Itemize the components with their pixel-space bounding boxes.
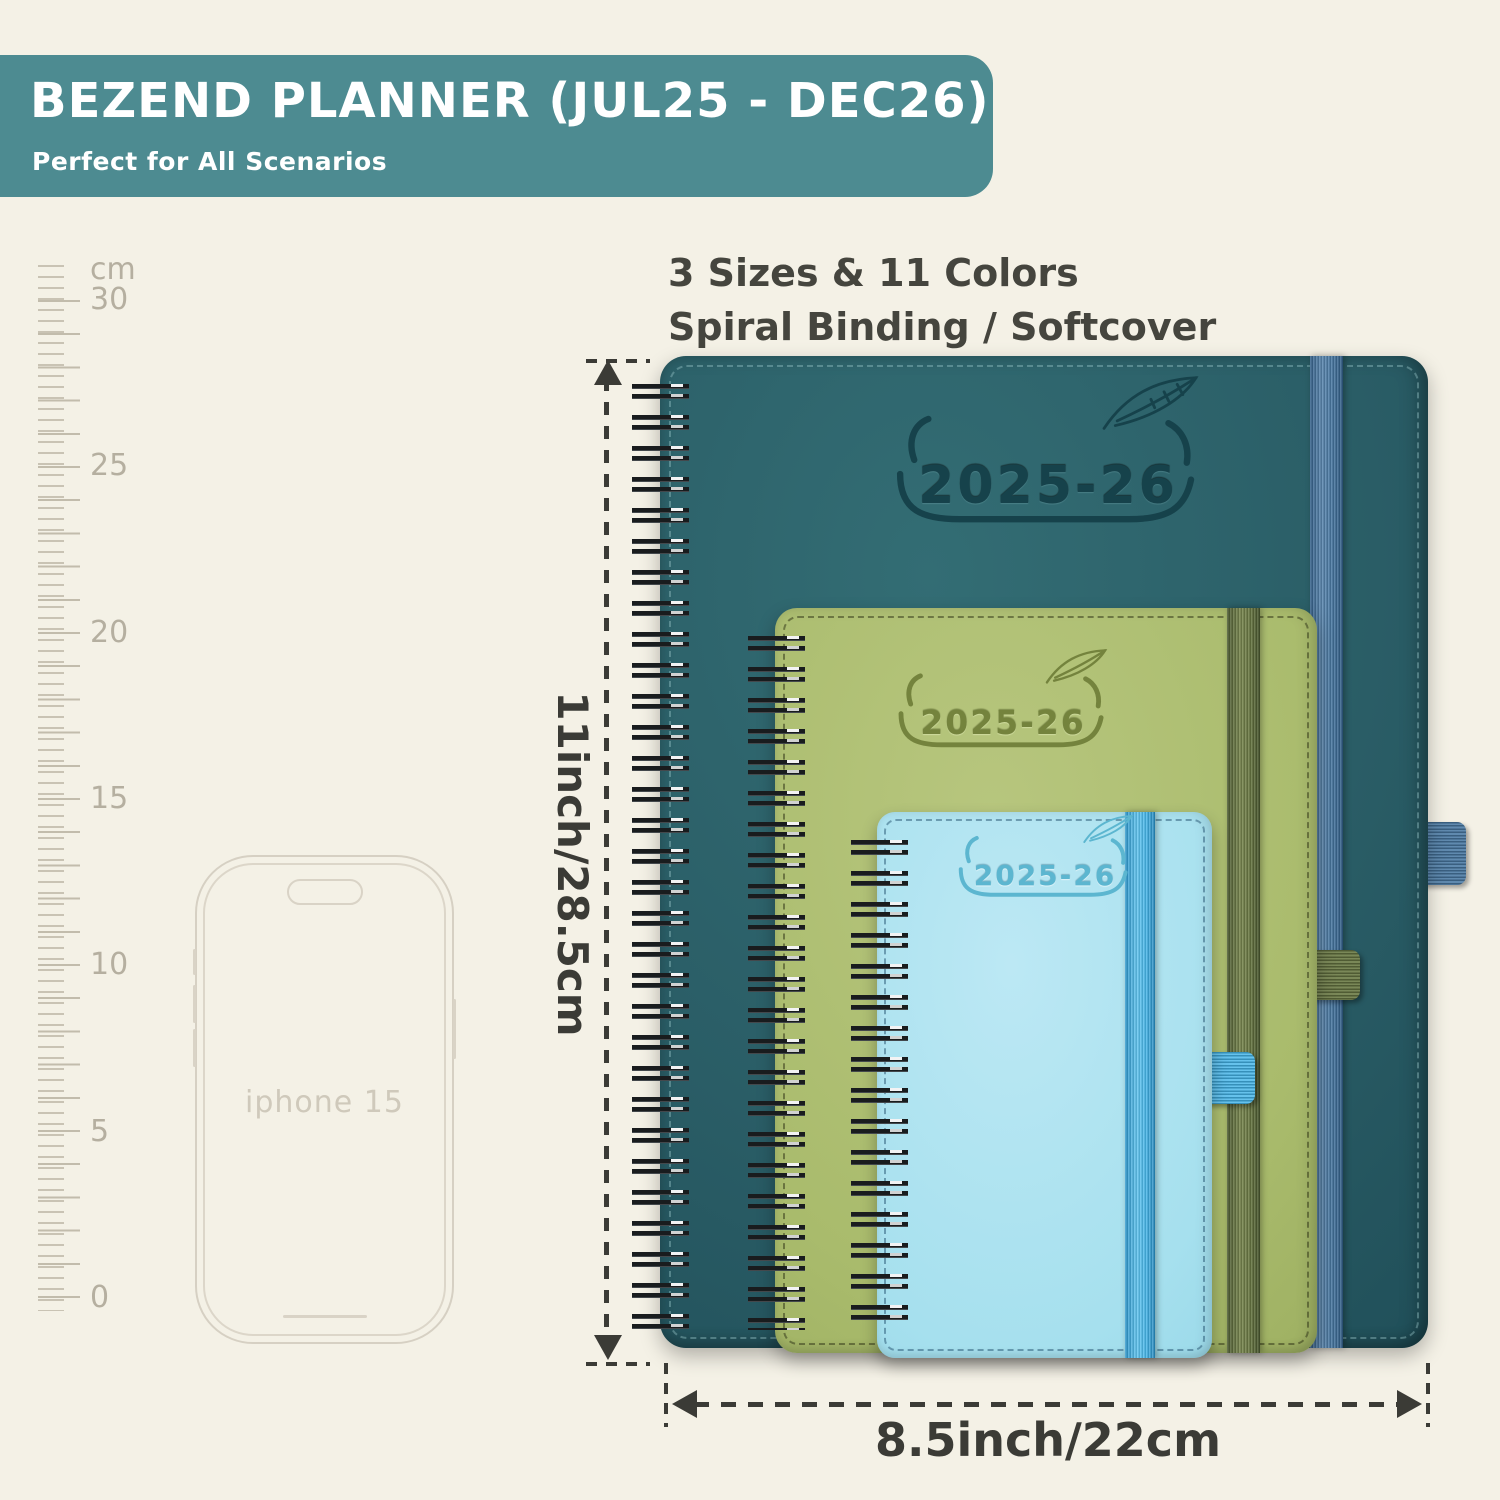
volume-up-button [193, 985, 196, 1023]
feather-icon [1043, 648, 1109, 686]
spiral-binding-small [851, 840, 908, 1332]
feather-icon [1098, 374, 1202, 434]
product-title: BEZEND PLANNER (JUL25 - DEC26) [30, 73, 990, 129]
feature-line-sizes: 3 Sizes & 11 Colors [668, 246, 1216, 300]
ruler-label-5: 5 [90, 1114, 109, 1149]
mute-switch [193, 949, 196, 975]
ruler-label-0: 0 [90, 1280, 109, 1315]
header-banner: BEZEND PLANNER (JUL25 - DEC26) Perfect f… [0, 55, 993, 197]
planner-logo-small: 2025-26 [959, 836, 1131, 892]
dynamic-island [287, 879, 363, 905]
height-dimension-label: 11inch/28.5cm [551, 664, 597, 1064]
iphone-outline: iphone 15 [195, 855, 454, 1344]
ruler-label-25: 25 [90, 448, 128, 483]
arrow-left-icon [672, 1390, 697, 1418]
planner-logo-large: 2025-26 [908, 414, 1188, 516]
width-dimension-line [694, 1402, 1400, 1407]
planner-small: 2025-26 [877, 812, 1212, 1358]
width-dimension-label: 8.5inch/22cm [848, 1413, 1248, 1467]
width-dimension-cap-left [664, 1363, 668, 1427]
feather-icon [1081, 814, 1135, 845]
planner-year-text: 2025-26 [920, 703, 1085, 742]
ruler-label-20: 20 [90, 615, 128, 650]
feature-text: 3 Sizes & 11 Colors Spiral Binding / Sof… [668, 246, 1216, 354]
ruler: cm 30 25 20 15 10 5 0 [38, 258, 168, 1318]
ruler-label-10: 10 [90, 947, 128, 982]
arrow-right-icon [1397, 1390, 1422, 1418]
width-dimension-cap-right [1426, 1363, 1430, 1427]
arrow-up-icon [594, 360, 622, 385]
arrow-down-icon [594, 1335, 622, 1360]
spiral-binding-large [632, 384, 689, 1332]
height-dimension-line [604, 378, 609, 1340]
product-image: BEZEND PLANNER (JUL25 - DEC26) Perfect f… [0, 0, 1500, 1500]
ruler-label-30: 30 [90, 282, 128, 317]
feature-line-binding: Spiral Binding / Softcover [668, 300, 1216, 354]
elastic-band-medium [1227, 608, 1260, 1353]
ruler-label-15: 15 [90, 781, 128, 816]
product-subtitle: Perfect for All Scenarios [32, 147, 387, 176]
power-button [453, 999, 456, 1059]
spiral-binding-medium [748, 636, 805, 1330]
planner-year-text: 2025-26 [918, 456, 1178, 516]
iphone-label: iphone 15 [197, 1085, 452, 1120]
ruler-ticks-major [38, 300, 80, 1302]
planner-year-text: 2025-26 [974, 859, 1117, 892]
height-dimension-cap-bottom [586, 1362, 650, 1366]
home-indicator [283, 1315, 367, 1318]
volume-down-button [193, 1029, 196, 1067]
planner-logo-medium: 2025-26 [903, 674, 1103, 742]
